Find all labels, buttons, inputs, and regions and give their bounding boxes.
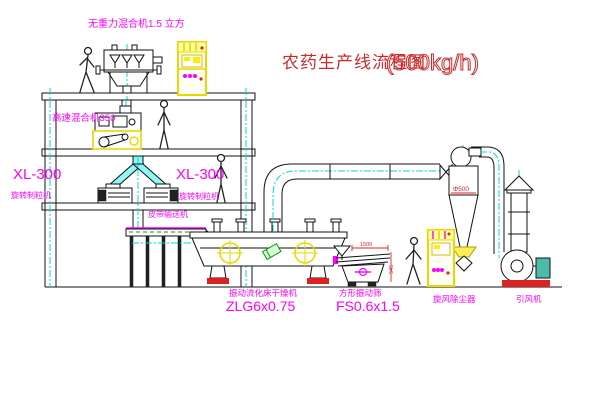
label-fan: 引风机 <box>516 294 542 304</box>
induced-draft-fan <box>501 170 550 287</box>
control-cabinet-1 <box>178 42 206 95</box>
control-cabinet-2 <box>428 230 454 286</box>
flow-diagram-canvas: 农药生产线流程图 (500kg/h) <box>0 0 600 403</box>
label-gravity-mixer: 无重力混合机1.5 立方 <box>88 17 185 30</box>
label-screen-model: FS0.6x1.5 <box>336 298 400 314</box>
cyclone-diameter-dim: Φ500 <box>453 186 469 193</box>
exhaust-duct <box>264 164 452 232</box>
person-walking-right <box>406 238 421 285</box>
label-granulator-left: 旋转制粒机 <box>11 190 51 200</box>
person-walking-roof <box>80 48 94 93</box>
person-second-floor <box>158 101 170 149</box>
high-speed-mixer <box>93 100 141 149</box>
label-xl300-right: XL-300 <box>176 166 224 183</box>
gravity-free-mixer <box>96 44 162 113</box>
label-screen: 方形振动筛 <box>339 288 382 298</box>
granulator-right <box>144 184 178 203</box>
label-xl300-left: XL-300 <box>13 166 61 183</box>
screen-width-dim: 1500 <box>360 242 372 248</box>
label-granulator-right: 旋转制粒机 <box>179 191 219 201</box>
diagram-svg: 农药生产线流程图 (500kg/h) <box>0 0 600 403</box>
vibrating-screen: 1500 545 <box>333 242 395 286</box>
diagram-title-capacity: (500kg/h) <box>386 50 479 75</box>
screen-height-dim: 545 <box>389 265 395 274</box>
label-belt-conveyor: 皮带输送机 <box>148 209 188 219</box>
granulator-left <box>98 184 132 203</box>
label-high-speed-mixer: 高速混合机350 <box>52 112 115 124</box>
label-cyclone: 旋风除尘器 <box>433 294 476 304</box>
label-dryer-model: ZLG6x0.75 <box>226 298 295 314</box>
label-dryer: 振动流化床干燥机 <box>229 288 298 298</box>
